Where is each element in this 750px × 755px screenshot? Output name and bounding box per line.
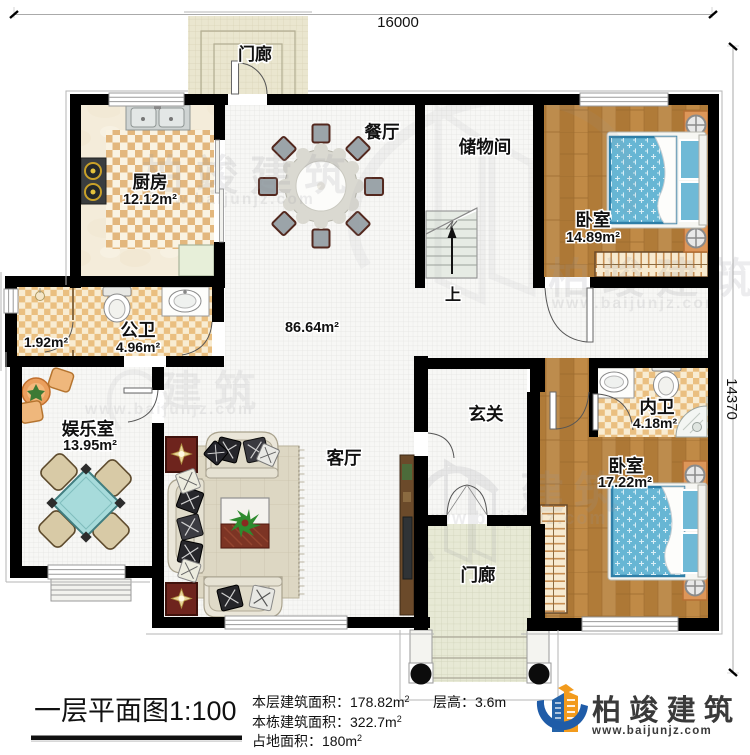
svg-text:17.22m²: 17.22m² (598, 475, 652, 491)
svg-text:4.96m²: 4.96m² (116, 339, 161, 355)
svg-text:本层建筑面积：178.82m2: 本层建筑面积：178.82m2 (252, 694, 410, 710)
svg-text:娱乐室: 娱乐室 (62, 419, 115, 439)
svg-text:门廊: 门廊 (461, 565, 496, 585)
svg-text:1.92m²: 1.92m² (24, 334, 69, 350)
svg-text:86.64m²: 86.64m² (285, 320, 339, 336)
svg-text:储物间: 储物间 (459, 137, 512, 157)
svg-text:本栋建筑面积：322.7m2: 本栋建筑面积：322.7m2 (252, 714, 402, 730)
svg-text:www.baijunjz.com: www.baijunjz.com (591, 725, 712, 737)
svg-text:4.18m²: 4.18m² (633, 415, 678, 431)
svg-text:柏竣建筑: 柏竣建筑 (592, 693, 741, 727)
svg-text:客厅: 客厅 (326, 448, 362, 468)
svg-text:www.baijunjz.com: www.baijunjz.com (84, 401, 254, 418)
svg-text:卧室: 卧室 (576, 210, 611, 230)
svg-text:内卫: 内卫 (640, 397, 675, 417)
svg-text:公卫: 公卫 (121, 320, 156, 340)
svg-text:一层平面图1:100: 一层平面图1:100 (34, 696, 237, 726)
svg-text:16000: 16000 (377, 14, 419, 31)
svg-text:14.89m²: 14.89m² (566, 230, 620, 246)
svg-text:14370: 14370 (723, 378, 740, 420)
svg-text:12.12m²: 12.12m² (123, 192, 177, 208)
svg-text:上: 上 (445, 286, 461, 304)
svg-text:玄关: 玄关 (469, 404, 504, 424)
svg-text:www.baijunjz.com: www.baijunjz.com (551, 295, 721, 312)
svg-text:厨房: 厨房 (133, 172, 168, 192)
svg-text:卧室: 卧室 (609, 456, 644, 476)
svg-text:13.95m²: 13.95m² (63, 438, 117, 454)
svg-text:占地面积：180m2: 占地面积：180m2 (252, 733, 362, 749)
svg-text:餐厅: 餐厅 (365, 122, 400, 142)
svg-text:层高：3.6m: 层高：3.6m (433, 694, 506, 710)
svg-text:门廊: 门廊 (238, 44, 272, 64)
